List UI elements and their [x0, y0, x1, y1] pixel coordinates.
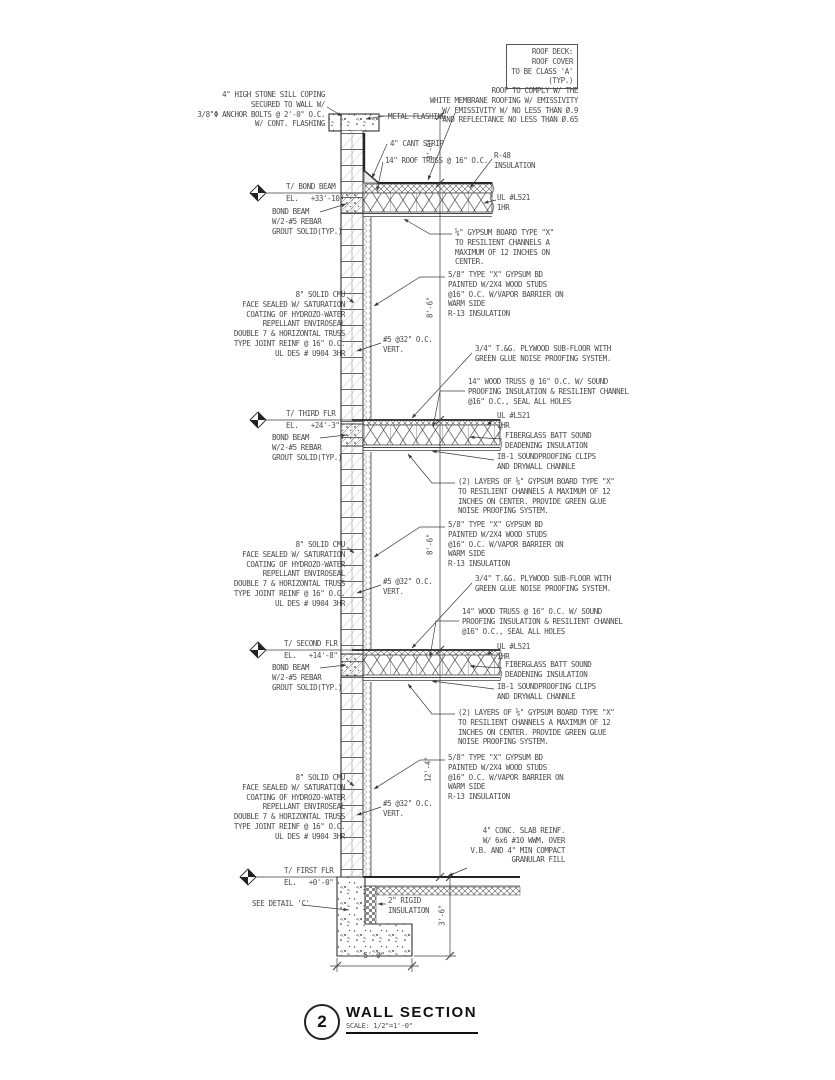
note-ib1-second: IB-1 SOUNDPROOFING CLIPS AND DRYWALL CHA… [497, 682, 596, 702]
note-vert-rebar-3: #5 @32" O.C. VERT. [383, 799, 432, 819]
elevation-marker-first [240, 869, 256, 885]
roof-assembly [363, 182, 494, 217]
note-gypsum-bd-2: 5/8" TYPE "X" GYPSUM BD PAINTED W/2X4 WO… [448, 520, 563, 569]
level-third-label: T/ THIRD FLR [286, 409, 335, 418]
interior-finish-strip [364, 217, 371, 876]
note-plywood-1: 3/4" T.&G. PLYWOOD SUB-FLOOR WITH GREEN … [475, 344, 611, 364]
note-wood-truss-2: 14" WOOD TRUSS @ 16" O.C. W/ SOUND PROOF… [462, 607, 623, 636]
note-ul-rating-roof: UL #L521 1HR [497, 193, 530, 213]
note-wood-truss-1: 14" WOOD TRUSS @ 16" O.C. W/ SOUND PROOF… [468, 377, 629, 406]
note-vert-rebar-1: #5 @32" O.C. VERT. [383, 335, 432, 355]
note-bond-beam-roof: BOND BEAM W/2-#5 REBAR GROUT SOLID(TYP.) [272, 207, 342, 236]
level-second-el: EL. +14'-8" [284, 651, 338, 660]
note-stone-sill-coping: 4" HIGH STONE SILL COPING SECURED TO WAL… [197, 90, 325, 129]
level-bondbeam-el: EL. +33'-10" [286, 194, 344, 203]
detail-number-circle: 2 [304, 1004, 340, 1040]
note-bond-beam-third: BOND BEAM W/2-#5 REBAR GROUT SOLID(TYP.) [272, 433, 342, 462]
dim-third-to-second: 8'-6" [426, 522, 435, 568]
note-gypsum-bd-3: 5/8" TYPE "X" GYPSUM BD PAINTED W/2X4 WO… [448, 753, 563, 802]
dim-footing-depth: 3'-6" [438, 893, 447, 939]
note-see-detail: SEE DETAIL 'C' [252, 899, 310, 909]
note-metal-flashing: METAL FLASHING [388, 112, 446, 122]
note-two-layers-2: (2) LAYERS OF ⅝" GYPSUM BOARD TYPE "X" T… [458, 708, 614, 747]
note-roof-truss: 14" ROOF TRUSS @ 16" O.C. [385, 156, 488, 166]
level-bondbeam-label: T/ BOND BEAM [286, 182, 335, 191]
note-fiberglass-second: FIBERGLASS BATT SOUND DEADENING INSULATI… [505, 660, 591, 680]
drawing-sheet: ROOF DECK: ROOF COVER TO BE CLASS 'A' (T… [0, 0, 835, 1080]
drawing-scale: SCALE: 1/2"=1'-0" [346, 1022, 478, 1030]
third-floor-assembly [352, 419, 502, 451]
drawing-title: WALL SECTION [346, 1004, 478, 1021]
note-cmu-wall-2: 8" SOLID CMU FACE SEALED W/ SATURATION C… [234, 540, 345, 608]
note-cmu-wall-1: 8" SOLID CMU FACE SEALED W/ SATURATION C… [234, 290, 345, 358]
cmu-wall [341, 114, 363, 877]
elevation-marker-second [250, 642, 266, 658]
note-rigid-insulation: 2" RIGID INSULATION [388, 896, 429, 916]
note-ib1-third: IB-1 SOUNDPROOFING CLIPS AND DRYWALL CHA… [497, 452, 596, 472]
note-ul-rating-second: UL #L521 1HR [497, 642, 530, 662]
dim-second-to-first: 12'-4" [424, 747, 433, 793]
note-r48-insulation: R-48 INSULATION [494, 151, 535, 171]
note-roof-comply: ROOF TO COMPLY W/ THE WHITE MEMBRANE ROO… [430, 86, 578, 125]
level-second-label: T/ SECOND FLR [284, 639, 338, 648]
elevation-marker-bondbeam [250, 185, 266, 201]
note-conc-slab: 4" CONC. SLAB REINF. W/ 6x6 #10 WWM. OVE… [470, 826, 565, 865]
note-roof-deck-box: ROOF DECK: ROOF COVER TO BE CLASS 'A' (T… [506, 44, 578, 89]
elevation-marker-third [250, 412, 266, 428]
dim-roof-to-third: 8'-6" [426, 285, 435, 331]
note-cant-strip: 4" CANT STRIP [390, 139, 444, 149]
level-first-label: T/ FIRST FLR [284, 866, 333, 875]
slab-and-footing [337, 877, 520, 956]
note-ul-rating-third: UL #L521 1HR [497, 411, 530, 431]
note-fiberglass-third: FIBERGLASS BATT SOUND DEADENING INSULATI… [505, 431, 591, 451]
note-gypsum-resilient: ⅝" GYPSUM BOARD TYPE "X" TO RESILIENT CH… [455, 228, 554, 267]
note-bond-beam-second: BOND BEAM W/2-#5 REBAR GROUT SOLID(TYP.) [272, 663, 342, 692]
second-floor-assembly [352, 649, 502, 681]
note-gypsum-bd-1: 5/8" TYPE "X" GYPSUM BD PAINTED W/2X4 WO… [448, 270, 563, 319]
note-plywood-2: 3/4" T.&G. PLYWOOD SUB-FLOOR WITH GREEN … [475, 574, 611, 594]
note-cmu-wall-3: 8" SOLID CMU FACE SEALED W/ SATURATION C… [234, 773, 345, 841]
level-first-el: EL. +0'-0" [284, 878, 333, 887]
dim-parapet-height: 3'-0" [426, 127, 435, 173]
note-vert-rebar-2: #5 @32" O.C. VERT. [383, 577, 432, 597]
note-two-layers-1: (2) LAYERS OF ⅝" GYPSUM BOARD TYPE "X" T… [458, 477, 614, 516]
dim-footing-width: 5'-0" [344, 951, 404, 960]
title-block: 2 WALL SECTION SCALE: 1/2"=1'-0" [304, 1004, 478, 1040]
level-third-el: EL. +24'-3" [286, 421, 340, 430]
